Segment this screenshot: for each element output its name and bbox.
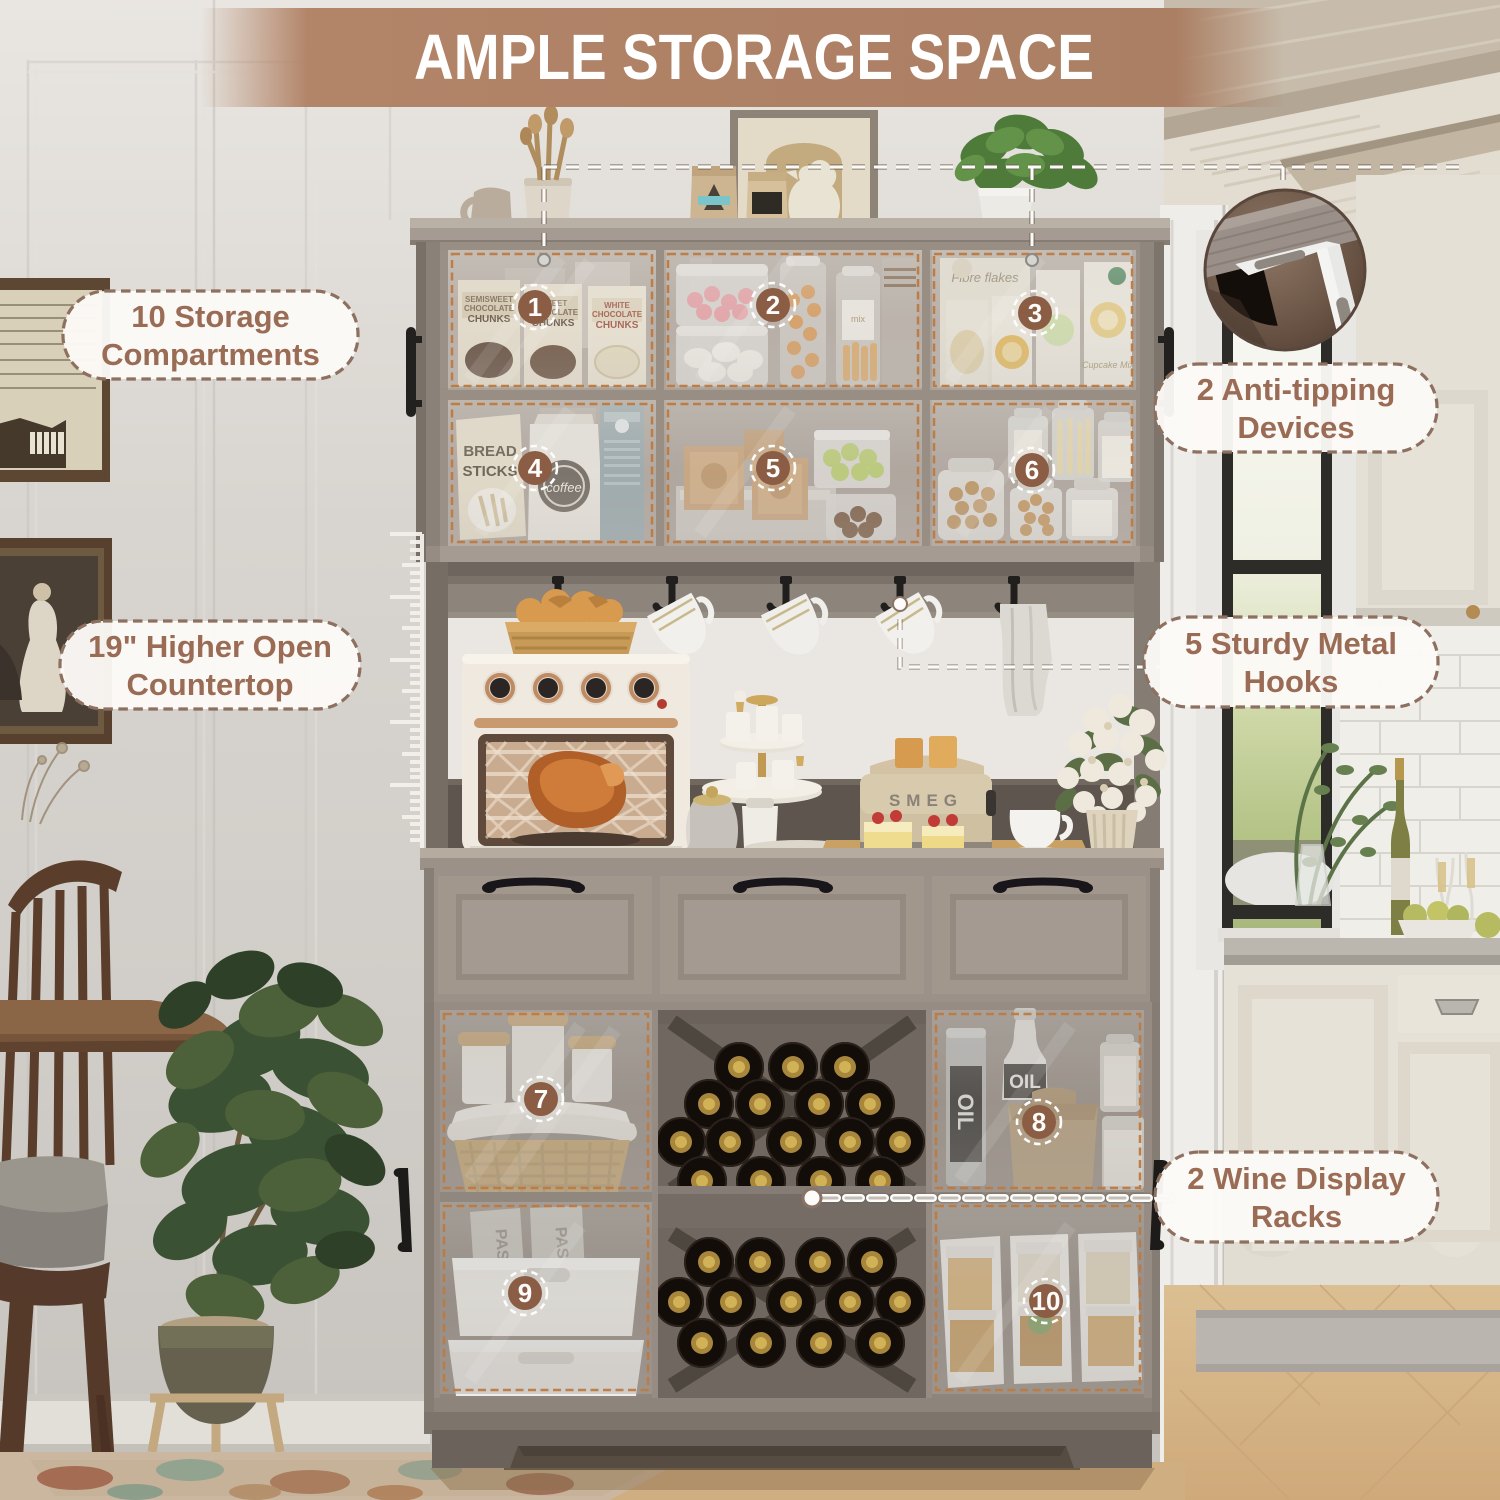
svg-text:2 Anti-tipping: 2 Anti-tipping bbox=[1197, 372, 1396, 407]
svg-text:Compartments: Compartments bbox=[101, 337, 320, 372]
svg-text:AMPLE STORAGE SPACE: AMPLE STORAGE SPACE bbox=[414, 21, 1094, 93]
svg-text:Devices: Devices bbox=[1237, 410, 1354, 445]
svg-text:5: 5 bbox=[766, 453, 780, 483]
svg-text:2 Wine Display: 2 Wine Display bbox=[1187, 1161, 1406, 1196]
svg-text:SMEG: SMEG bbox=[889, 791, 963, 810]
svg-text:7: 7 bbox=[534, 1084, 548, 1114]
svg-text:3: 3 bbox=[1028, 298, 1042, 328]
svg-text:10 Storage: 10 Storage bbox=[131, 299, 290, 334]
svg-text:Racks: Racks bbox=[1251, 1199, 1342, 1234]
svg-text:4: 4 bbox=[528, 453, 543, 483]
svg-text:5 Sturdy Metal: 5 Sturdy Metal bbox=[1185, 626, 1397, 661]
svg-text:Hooks: Hooks bbox=[1244, 664, 1339, 699]
svg-text:1: 1 bbox=[528, 292, 542, 322]
svg-text:Countertop: Countertop bbox=[126, 667, 293, 702]
svg-text:10: 10 bbox=[1032, 1286, 1061, 1316]
svg-text:19" Higher Open: 19" Higher Open bbox=[88, 629, 332, 664]
svg-text:2: 2 bbox=[766, 290, 780, 320]
svg-text:6: 6 bbox=[1025, 455, 1039, 485]
svg-text:8: 8 bbox=[1032, 1107, 1046, 1137]
svg-text:9: 9 bbox=[518, 1278, 532, 1308]
